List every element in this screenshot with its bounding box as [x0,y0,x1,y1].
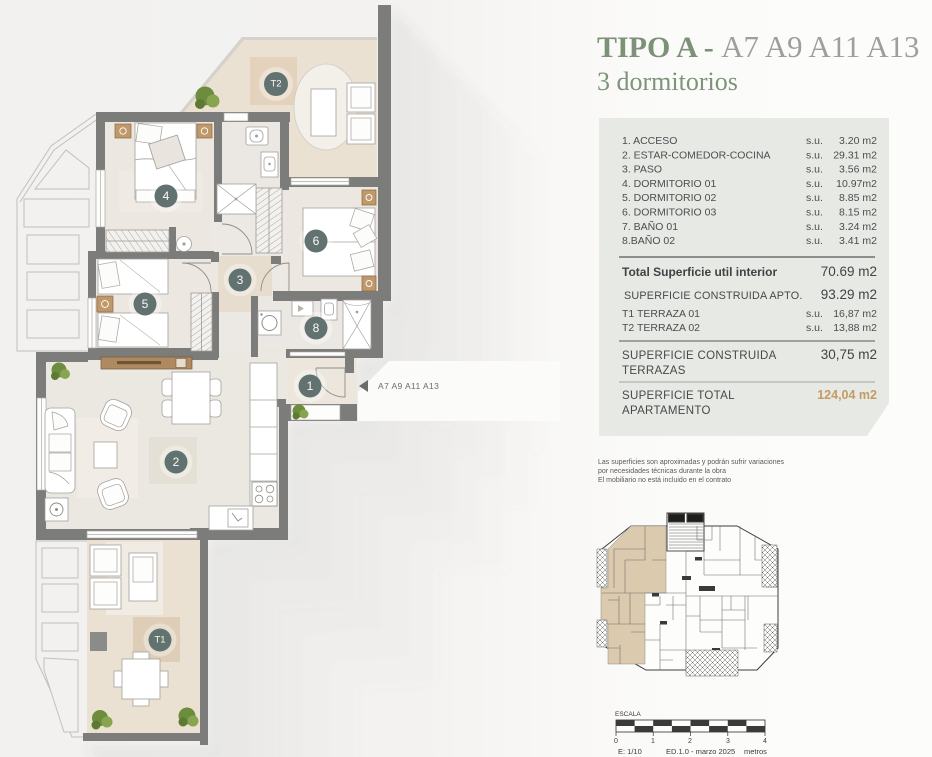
svg-text:T1: T1 [154,635,165,646]
svg-text:8.BAÑO 02: 8.BAÑO 02 [622,234,675,247]
svg-text:3.20 m2: 3.20 m2 [839,135,877,147]
svg-text:3: 3 [726,738,730,745]
svg-text:TIPO A - A7 A9 A11 A13: TIPO A - A7 A9 A11 A13 [597,30,919,64]
svg-text:8.85 m2: 8.85 m2 [839,192,877,204]
svg-text:2: 2 [173,455,180,469]
svg-text:1: 1 [307,379,314,393]
svg-text:8.15 m2: 8.15 m2 [839,207,877,219]
svg-text:s.u.: s.u. [806,322,823,334]
svg-text:T2: T2 [270,79,281,90]
svg-text:El mobiliario no está incluido: El mobiliario no está incluido en el con… [598,477,731,484]
svg-text:7. BAÑO 01: 7. BAÑO 01 [622,220,678,233]
svg-text:metros: metros [744,747,767,756]
svg-text:T2 TERRAZA 02: T2 TERRAZA 02 [622,322,700,334]
svg-text:3.41 m2: 3.41 m2 [839,235,877,247]
svg-text:2. ESTAR-COMEDOR-COCINA: 2. ESTAR-COMEDOR-COCINA [622,149,771,161]
svg-text:2: 2 [688,738,692,745]
svg-text:5: 5 [142,297,149,311]
svg-text:s.u.: s.u. [806,221,823,233]
svg-text:por necesidades técnicas duran: por necesidades técnicas durante la obra [598,468,726,475]
svg-text:Las superficies son aproximada: Las superficies son aproximadas y podrán… [598,459,784,466]
svg-text:SUPERFICIE TOTAL: SUPERFICIE TOTAL [622,390,735,402]
svg-text:3.56 m2: 3.56 m2 [839,164,877,176]
svg-text:E: 1/10: E: 1/10 [618,747,642,756]
svg-text:70.69 m2: 70.69 m2 [821,264,877,279]
svg-text:93.29 m2: 93.29 m2 [821,287,877,302]
svg-text:4: 4 [763,738,767,745]
svg-text:s.u.: s.u. [806,308,823,320]
svg-text:13,88 m2: 13,88 m2 [833,322,877,334]
svg-text:1. ACCESO: 1. ACCESO [622,135,677,147]
svg-text:3.24 m2: 3.24 m2 [839,221,877,233]
svg-text:s.u.: s.u. [806,207,823,219]
svg-text:Total Superficie util interior: Total Superficie util interior [622,265,777,279]
svg-text:6: 6 [313,234,320,248]
svg-text:4: 4 [163,189,170,203]
svg-text:4. DORMITORIO 01: 4. DORMITORIO 01 [622,178,716,190]
svg-text:s.u.: s.u. [806,164,823,176]
svg-text:s.u.: s.u. [806,135,823,147]
svg-text:ED.1.0 - marzo 2025: ED.1.0 - marzo 2025 [666,747,735,756]
svg-text:29.31 m2: 29.31 m2 [833,149,877,161]
svg-text:1: 1 [651,738,655,745]
svg-text:6. DORMITORIO 03: 6. DORMITORIO 03 [622,207,716,219]
svg-text:16,87 m2: 16,87 m2 [833,308,877,320]
svg-text:10.97m2: 10.97m2 [836,178,877,190]
svg-text:APARTAMENTO: APARTAMENTO [622,405,711,417]
svg-text:T1 TERRAZA 01: T1 TERRAZA 01 [622,308,700,320]
svg-text:s.u.: s.u. [806,235,823,247]
svg-text:124,04 m2: 124,04 m2 [817,388,877,402]
svg-text:30,75 m2: 30,75 m2 [821,347,877,362]
svg-text:TERRAZAS: TERRAZAS [622,365,686,377]
svg-text:s.u.: s.u. [806,178,823,190]
svg-text:3. PASO: 3. PASO [622,164,662,176]
svg-text:8: 8 [313,321,320,335]
svg-text:3: 3 [237,273,244,287]
svg-text:s.u.: s.u. [806,149,823,161]
svg-text:5. DORMITORIO 02: 5. DORMITORIO 02 [622,192,716,204]
svg-text:0: 0 [614,738,618,745]
svg-text:SUPERFICIE CONSTRUIDA: SUPERFICIE CONSTRUIDA [622,350,777,362]
svg-text:s.u.: s.u. [806,192,823,204]
svg-text:A7 A9 A11 A13: A7 A9 A11 A13 [378,381,439,391]
svg-text:ESCALA: ESCALA [615,711,641,718]
svg-text:3 dormitorios: 3 dormitorios [597,67,738,96]
svg-text:SUPERFICIE CONSTRUIDA APTO.: SUPERFICIE CONSTRUIDA APTO. [624,290,803,302]
